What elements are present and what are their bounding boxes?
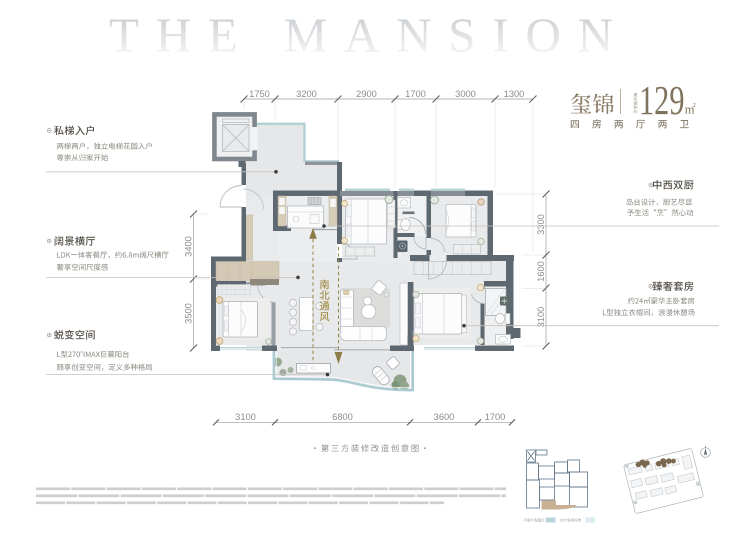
svg-text:1700: 1700 <box>485 412 506 422</box>
svg-text:2900: 2900 <box>356 89 377 99</box>
svg-text:3400: 3400 <box>184 236 194 257</box>
svg-text:1700: 1700 <box>405 89 426 99</box>
svg-text:1600: 1600 <box>536 261 546 282</box>
svg-text:3300: 3300 <box>536 214 546 235</box>
svg-text:3000: 3000 <box>455 89 476 99</box>
svg-text:3200: 3200 <box>296 89 317 99</box>
svg-text:1750: 1750 <box>249 89 270 99</box>
svg-text:6800: 6800 <box>332 412 353 422</box>
svg-text:1300: 1300 <box>504 89 525 99</box>
svg-text:3100: 3100 <box>235 412 256 422</box>
svg-text:2: 2 <box>693 102 696 109</box>
svg-text:3100: 3100 <box>536 307 546 328</box>
svg-text:129: 129 <box>639 77 685 123</box>
svg-text:3600: 3600 <box>434 412 455 422</box>
svg-text:3500: 3500 <box>184 303 194 324</box>
svg-text:THE MANSION: THE MANSION <box>109 8 613 63</box>
